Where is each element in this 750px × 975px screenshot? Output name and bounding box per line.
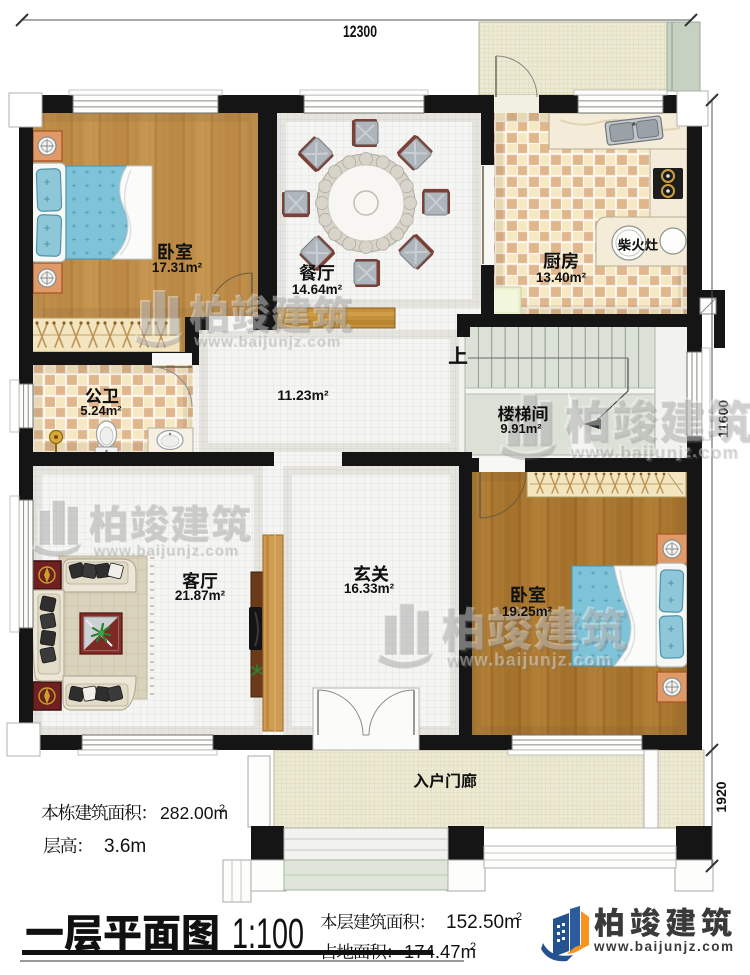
- svg-text:14.64m²: 14.64m²: [292, 282, 343, 297]
- svg-text:19.25m²: 19.25m²: [502, 604, 553, 619]
- svg-text:www.baijunjz.com: www.baijunjz.com: [445, 650, 613, 670]
- svg-text:152.50m: 152.50m: [446, 912, 520, 933]
- svg-text:17.31m²: 17.31m²: [152, 260, 203, 275]
- svg-text:1920: 1920: [713, 781, 729, 812]
- svg-text:5.24m²: 5.24m²: [80, 403, 122, 418]
- svg-text:16.33m²: 16.33m²: [344, 581, 395, 596]
- svg-text:282.00m: 282.00m: [160, 803, 228, 823]
- svg-text:2: 2: [470, 941, 476, 953]
- svg-text:174.47m: 174.47m: [404, 941, 476, 962]
- svg-text:2: 2: [516, 911, 522, 923]
- svg-text:13.40m²: 13.40m²: [536, 270, 587, 285]
- svg-text:www.baijunjz.com: www.baijunjz.com: [194, 333, 340, 350]
- svg-text:12300: 12300: [343, 23, 377, 41]
- svg-text:11.23m²: 11.23m²: [277, 387, 329, 403]
- svg-text:2: 2: [219, 803, 225, 815]
- svg-text:9.91m²: 9.91m²: [500, 421, 542, 436]
- svg-text:21.87m²: 21.87m²: [175, 588, 226, 603]
- svg-text:www.baijunjz.com: www.baijunjz.com: [569, 442, 739, 462]
- svg-text:www.baijunjz.com: www.baijunjz.com: [593, 939, 735, 954]
- svg-text:www.baijunjz.com: www.baijunjz.com: [92, 542, 238, 559]
- svg-text:3.6m: 3.6m: [104, 836, 146, 857]
